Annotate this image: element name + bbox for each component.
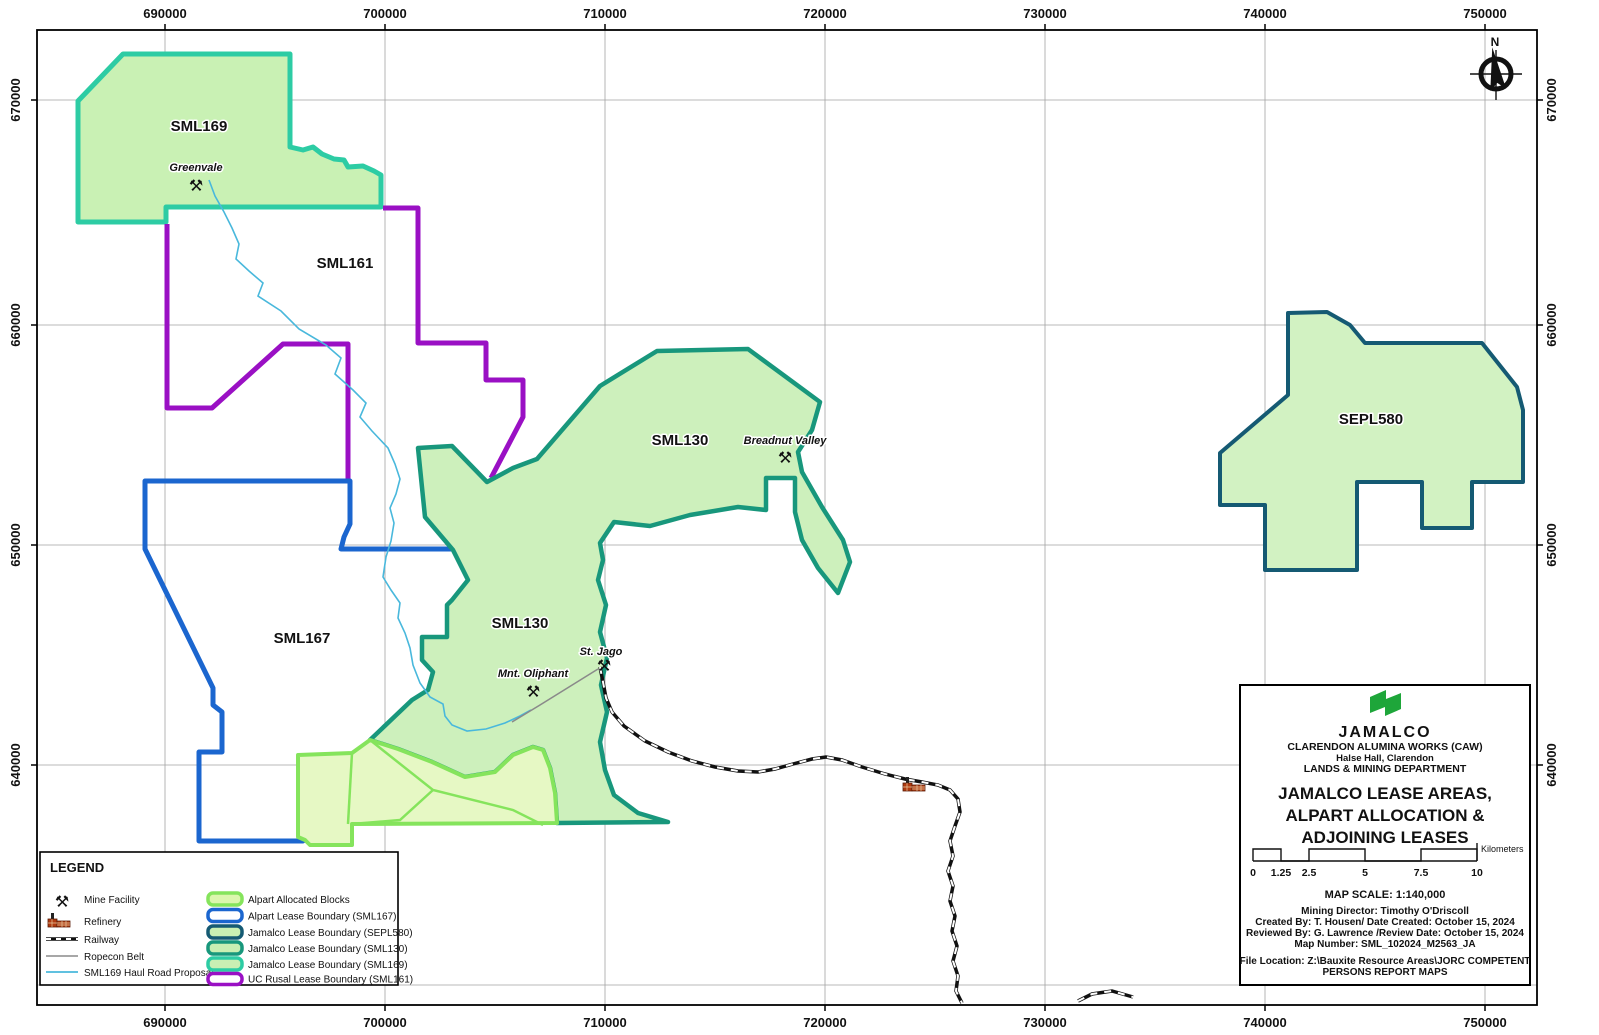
axis-tick-label: 660000	[1544, 303, 1559, 346]
axis-tick-label: 750000	[1463, 1015, 1506, 1030]
title-block: JAMALCO CLARENDON ALUMINA WORKS (CAW) Ha…	[1240, 685, 1531, 985]
lease-label-sml169: SML169	[171, 118, 228, 135]
legend-title: LEGEND	[50, 860, 104, 875]
legend-item-label: Refinery	[84, 917, 121, 928]
scale-tick-label: 0	[1250, 867, 1256, 879]
axis-tick-label: 660000	[8, 303, 23, 346]
axis-tick-label: 720000	[803, 1015, 846, 1030]
credit-reviewed-by: Reviewed By: G. Lawrence /Review Date: O…	[1246, 928, 1524, 939]
place-label-mnt-oliphant: Mnt. Oliphant	[498, 668, 570, 680]
mine-facility-icon: ⚒	[778, 450, 792, 467]
axis-tick-label: 710000	[583, 6, 626, 21]
file-location-line1: File Location: Z:\Bauxite Resource Areas…	[1240, 956, 1531, 967]
legend-item-label: Ropecon Belt	[84, 952, 144, 963]
axis-tick-label: 730000	[1023, 1015, 1066, 1030]
lease-label-sml130-central: SML130	[492, 615, 549, 632]
credit-mining-director: Mining Director: Timothy O'Driscoll	[1301, 906, 1469, 917]
legend-patch	[208, 974, 242, 985]
org-line2: CLARENDON ALUMINA WORKS (CAW)	[1287, 741, 1482, 753]
mine-facility-icon: ⚒	[189, 178, 203, 195]
scale-tick-label: 5	[1362, 867, 1368, 879]
axis-tick-label: 750000	[1463, 6, 1506, 21]
legend-item-label: Alpart Lease Boundary (SML167)	[248, 912, 396, 923]
legend-item-label: UC Rusal Lease Boundary (SML161)	[248, 975, 413, 986]
axis-tick-label: 690000	[143, 1015, 186, 1030]
mine-facility-icon: ⚒	[526, 684, 540, 701]
credit-created-by: Created By: T. Housen/ Date Created: Oct…	[1255, 917, 1515, 928]
scale-tick-label: 2.5	[1302, 867, 1317, 879]
legend-patch	[208, 910, 242, 922]
scale-tick-label: 10	[1471, 867, 1483, 879]
lease-label-sepl580: SEPL580	[1339, 411, 1403, 428]
axis-tick-label: 640000	[1544, 743, 1559, 786]
axis-tick-label: 740000	[1243, 1015, 1286, 1030]
place-label-breadnut-valley: Breadnut Valley	[744, 435, 828, 447]
legend: LEGEND ⚒ Mine Facility Refinery Railway …	[40, 852, 413, 986]
axis-labels-bottom: 690000 700000 710000 720000 730000 74000…	[143, 1015, 1506, 1030]
axis-labels-top: 690000 700000 710000 720000 730000 74000…	[143, 6, 1506, 21]
legend-item-label: Alpart Allocated Blocks	[248, 895, 350, 906]
axis-tick-label: 700000	[363, 6, 406, 21]
map-sheet: ⚒ ⚒ ⚒ ⚒ Greenvale Breadnut Valley Mnt. O…	[0, 0, 1599, 1035]
legend-patch	[208, 942, 242, 954]
axis-tick-label: 730000	[1023, 6, 1066, 21]
legend-patch	[208, 926, 242, 938]
scale-unit-label: Kilometers	[1481, 844, 1524, 854]
svg-text:N: N	[1491, 35, 1500, 49]
axis-tick-label: 670000	[1544, 78, 1559, 121]
legend-patch	[208, 893, 242, 905]
legend-item-label: Jamalco Lease Boundary (SML169)	[248, 960, 408, 971]
axis-tick-label: 650000	[8, 523, 23, 566]
legend-item-label: Jamalco Lease Boundary (SML130)	[248, 944, 408, 955]
lease-label-sml161: SML161	[317, 255, 374, 272]
mine-facility-icon: ⚒	[597, 658, 611, 675]
map-title-line3: ADJOINING LEASES	[1301, 828, 1468, 847]
map-title-line1: JAMALCO LEASE AREAS,	[1278, 784, 1492, 803]
axis-tick-label: 670000	[8, 78, 23, 121]
axis-tick-label: 740000	[1243, 6, 1286, 21]
axis-tick-label: 700000	[363, 1015, 406, 1030]
legend-patch	[208, 958, 242, 970]
legend-item-label: Railway	[84, 935, 119, 946]
scale-tick-label: 1.25	[1271, 867, 1292, 879]
lease-label-sml130-north: SML130	[652, 432, 709, 449]
axis-tick-label: 710000	[583, 1015, 626, 1030]
place-label-greenvale: Greenvale	[169, 162, 222, 174]
axis-tick-label: 640000	[8, 743, 23, 786]
legend-item-label: Jamalco Lease Boundary (SEPL580)	[248, 928, 413, 939]
legend-item-label: SML169 Haul Road Proposal	[84, 968, 214, 979]
scale-tick-label: 7.5	[1414, 867, 1429, 879]
axis-labels-left: 670000 660000 650000 640000	[8, 78, 23, 786]
map-scale-text: MAP SCALE: 1:140,000	[1325, 889, 1446, 901]
axis-tick-label: 720000	[803, 6, 846, 21]
org-name: JAMALCO	[1338, 724, 1431, 741]
org-line4: LANDS & MINING DEPARTMENT	[1304, 763, 1467, 775]
credit-map-number: Map Number: SML_102024_M2563_JA	[1294, 939, 1475, 950]
lease-label-sml167: SML167	[274, 630, 331, 647]
map-title-line2: ALPART ALLOCATION &	[1286, 806, 1485, 825]
axis-tick-label: 650000	[1544, 523, 1559, 566]
legend-item-label: Mine Facility	[84, 895, 140, 906]
place-label-st-jago: St. Jago	[580, 646, 623, 658]
mine-facility-icon: ⚒	[55, 894, 69, 911]
axis-labels-right: 670000 660000 650000 640000	[1544, 78, 1559, 786]
axis-tick-label: 690000	[143, 6, 186, 21]
file-location-line2: PERSONS REPORT MAPS	[1322, 967, 1447, 978]
